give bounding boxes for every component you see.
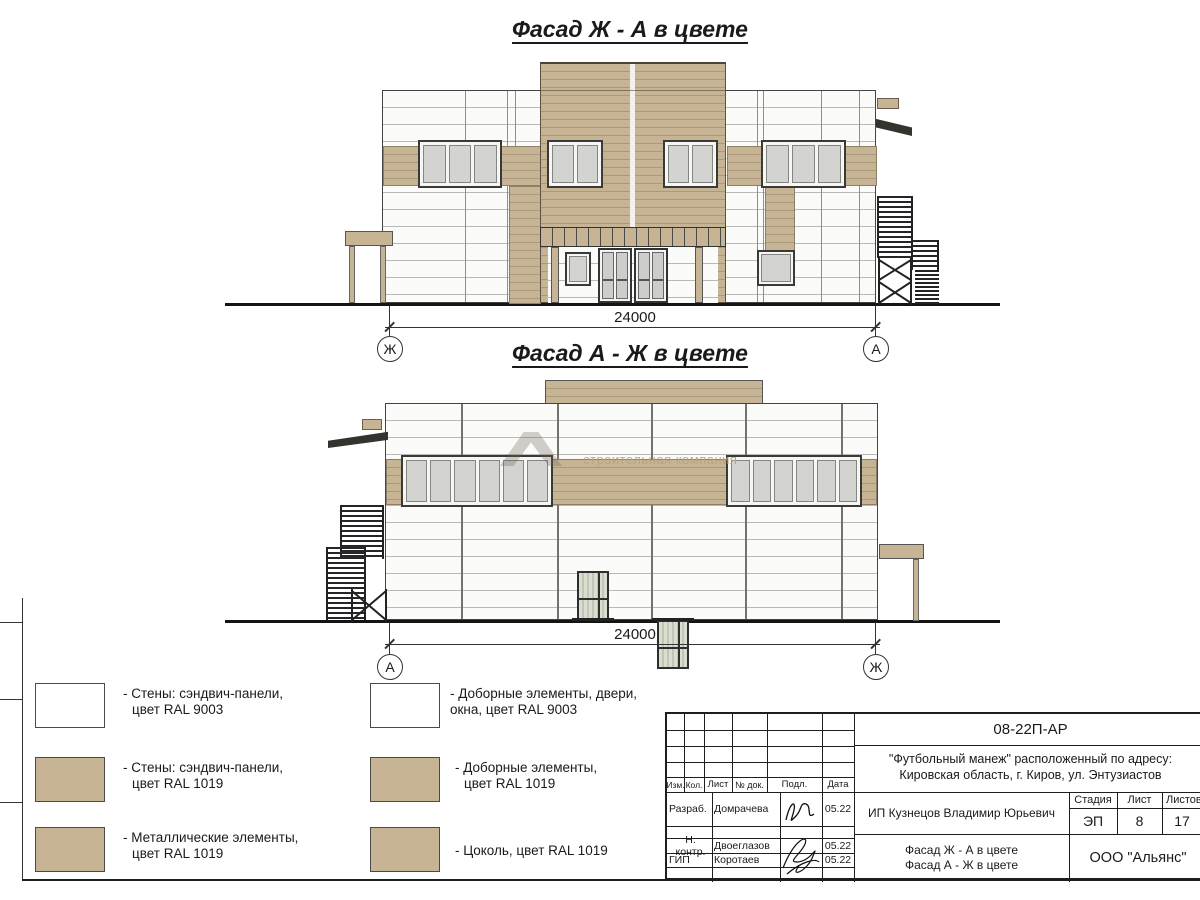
panel-joint: [745, 404, 747, 619]
project-name: "Футбольный манеж" расположенный по адре…: [854, 747, 1200, 792]
window-pane: [766, 145, 789, 183]
legend-label-line: - Доборные элементы, двери,: [450, 686, 690, 702]
title-block-line: [667, 762, 854, 763]
row-date: 05.22: [822, 853, 854, 867]
window-pane: [423, 145, 446, 183]
facade2-building: [385, 403, 878, 620]
legend-label-line: цвет RAL 1019: [123, 776, 363, 792]
row-name: Коротаев: [714, 853, 778, 867]
window-pane: [569, 256, 587, 282]
drawing-sheet: Фасад Ж - А в цвете: [0, 0, 1200, 900]
col-header-list: Лист: [704, 777, 732, 792]
extension-line: [875, 305, 876, 336]
company-name: ООО "Альянс": [1069, 834, 1200, 882]
facade1-left-canopy-slab: [345, 231, 393, 246]
window-pane: [454, 460, 475, 502]
client-name: ИП Кузнецов Владимир Юрьевич: [854, 792, 1069, 834]
facade2-title: Фасад А - Ж в цвете: [430, 340, 830, 367]
facade1-window-2: [547, 140, 603, 188]
facade1-stair-railing: [877, 196, 913, 258]
facade1-dimension-value: 24000: [560, 309, 710, 326]
extension-line: [875, 622, 876, 654]
facade1-window-1: [418, 140, 502, 188]
legend-label: - Стены: сэндвич-панели, цвет RAL 9003: [123, 686, 363, 718]
col-header-izm: Изм.: [667, 777, 684, 792]
facade1-stair-cross-brace: [877, 258, 913, 305]
legend-label-line: - Цоколь, цвет RAL 1019: [455, 843, 695, 859]
window-pane: [817, 460, 836, 502]
row-role: Разраб.: [669, 792, 712, 826]
door-leaf: [602, 252, 614, 299]
facade1-sidelight-window: [565, 252, 591, 286]
title-block-line: [712, 792, 713, 882]
facade2-roof-element: [362, 419, 382, 430]
window-pane: [406, 460, 427, 502]
panel-joint: [557, 404, 559, 619]
row-role: Н. контр.: [669, 838, 712, 853]
door-leaf: [652, 252, 664, 299]
sheet-title-line: Фасад Ж - А в цвете: [905, 843, 1018, 858]
signature: [780, 794, 820, 826]
panel-joint: [465, 91, 466, 302]
legend-label-line: цвет RAL 1019: [123, 846, 363, 862]
window-pane: [479, 460, 500, 502]
legend-swatch-ral1019: [35, 827, 105, 872]
window-pane: [692, 145, 713, 183]
legend-swatch-ral1019: [35, 757, 105, 802]
facade1-stair-steps: [915, 270, 939, 304]
col-header-kol: Кол.: [684, 777, 704, 792]
facade1-dimension-line: [385, 327, 880, 328]
facade1-post-right: [695, 247, 703, 303]
facade1-post-left: [551, 247, 559, 303]
sheet-title: Фасад Ж - А в цвете Фасад А - Ж в цвете: [854, 834, 1069, 882]
tower-roofline: [541, 90, 725, 91]
facade2-right-canopy-slab: [879, 544, 924, 559]
window-pane: [552, 145, 574, 183]
window-pane: [839, 460, 858, 502]
window-pane: [503, 460, 524, 502]
legend-label: - Доборные элементы, цвет RAL 1019: [455, 760, 695, 792]
title-block-line: [854, 745, 1200, 746]
sheet-label: Лист: [1117, 792, 1162, 808]
row-role: ГИП: [669, 853, 712, 867]
signature: [775, 828, 823, 880]
legend-label-line: цвет RAL 9003: [123, 702, 363, 718]
project-name-line: Кировская область, г. Киров, ул. Энтузиа…: [854, 767, 1200, 783]
col-header-data: Дата: [822, 777, 854, 792]
door-sill: [652, 618, 694, 621]
row-name: Домрачева: [714, 792, 778, 826]
watermark-text: строительная компания: [583, 452, 803, 467]
sheets-total: 17: [1162, 808, 1200, 834]
facade1-stair-railing: [911, 240, 939, 270]
facade2-window-left: [401, 455, 553, 507]
window-pane: [474, 145, 497, 183]
legend-label: - Стены: сэндвич-панели, цвет RAL 1019: [123, 760, 363, 792]
stage-value: ЭП: [1069, 808, 1117, 834]
window-pane: [818, 145, 841, 183]
facade1-left-canopy-post: [380, 246, 386, 303]
doc-number: 08-22П-АР: [854, 714, 1200, 745]
legend-swatch-ral9003: [35, 683, 105, 728]
facade1-canopy-band: [540, 227, 726, 247]
facade2-parapet: [545, 380, 763, 404]
panel-joint: [507, 91, 508, 302]
panel-joint: [461, 404, 463, 619]
facade1-axis-right: А: [863, 336, 889, 362]
facade2-axis-right: Ж: [863, 654, 889, 680]
extension-line: [389, 622, 390, 654]
facade2-axis-left: А: [377, 654, 403, 680]
legend-swatch-ral1019: [370, 757, 440, 802]
facade1-pilaster-left: [509, 186, 541, 304]
legend-swatch-ral9003: [370, 683, 440, 728]
facade2-door-1: [577, 571, 609, 620]
col-header-ndoc: № док.: [732, 777, 767, 792]
row-name: Двоеглазов: [714, 838, 778, 853]
facade1-roof-element: [877, 98, 899, 109]
facade1-door-2: [634, 248, 668, 303]
facade1-door-1: [598, 248, 632, 303]
legend-label-line: - Стены: сэндвич-панели,: [123, 760, 363, 776]
legend-label-line: - Доборные элементы,: [455, 760, 695, 776]
panel-joint: [859, 91, 860, 302]
sheets-label: Листов: [1162, 792, 1200, 808]
frame-tick: [0, 699, 22, 700]
project-name-line: "Футбольный манеж" расположенный по адре…: [854, 751, 1200, 767]
facade2-side-awning: [328, 430, 388, 448]
facade1-small-window-right: [757, 250, 795, 286]
panel-joint: [821, 91, 822, 302]
door-leaf: [638, 252, 650, 299]
window-pane: [430, 460, 451, 502]
legend-label-line: - Металлические элементы,: [123, 830, 363, 846]
facade2-dimension-value: 24000: [560, 626, 710, 643]
facade1-left-canopy-post: [349, 246, 355, 303]
legend-label: - Цоколь, цвет RAL 1019: [455, 843, 695, 859]
panel-joint: [651, 404, 653, 619]
window-pane: [668, 145, 689, 183]
title-block: Изм. Кол. Лист № док. Подл. Дата Разраб.…: [665, 712, 1200, 880]
facade1-window-3: [663, 140, 718, 188]
facade2-stair-cross-brace: [350, 589, 388, 622]
frame-tick: [0, 622, 22, 623]
legend-swatch-ral1019: [370, 827, 440, 872]
facade1-axis-left: Ж: [377, 336, 403, 362]
legend-label-line: окна, цвет RAL 9003: [450, 702, 690, 718]
legend-label-line: цвет RAL 1019: [455, 776, 695, 792]
window-pane: [527, 460, 548, 502]
title-block-line: [667, 867, 854, 868]
window-pane: [577, 145, 599, 183]
facade1-title: Фасад Ж - А в цвете: [430, 16, 830, 43]
extension-line: [389, 305, 390, 336]
row-date: 05.22: [822, 792, 854, 826]
door-sill: [572, 618, 614, 621]
legend-label-line: - Стены: сэндвич-панели,: [123, 686, 363, 702]
facade2-right-canopy-post: [913, 559, 919, 621]
sheet-title-line: Фасад А - Ж в цвете: [905, 858, 1018, 873]
title-block-line: [667, 730, 854, 731]
title-block-line: [667, 826, 854, 827]
legend-label: - Металлические элементы, цвет RAL 1019: [123, 830, 363, 862]
legend-label: - Доборные элементы, двери, окна, цвет R…: [450, 686, 690, 718]
sheet-number: 8: [1117, 808, 1162, 834]
door-leaf: [616, 252, 628, 299]
facade1-window-4: [761, 140, 846, 188]
facade2-dimension-line: [385, 644, 880, 645]
col-header-podp: Подл.: [767, 777, 822, 792]
facade1-pilaster-right: [765, 186, 795, 251]
frame-left-line: [22, 598, 23, 880]
facade1-side-awning: [876, 117, 912, 136]
window-pane: [449, 145, 472, 183]
title-block-line: [667, 746, 854, 747]
panel-joint: [841, 404, 843, 619]
frame-tick: [0, 802, 22, 803]
window-pane: [792, 145, 815, 183]
window-pane: [761, 254, 791, 282]
row-date: 05.22: [822, 838, 854, 853]
stage-label: Стадия: [1069, 792, 1117, 808]
